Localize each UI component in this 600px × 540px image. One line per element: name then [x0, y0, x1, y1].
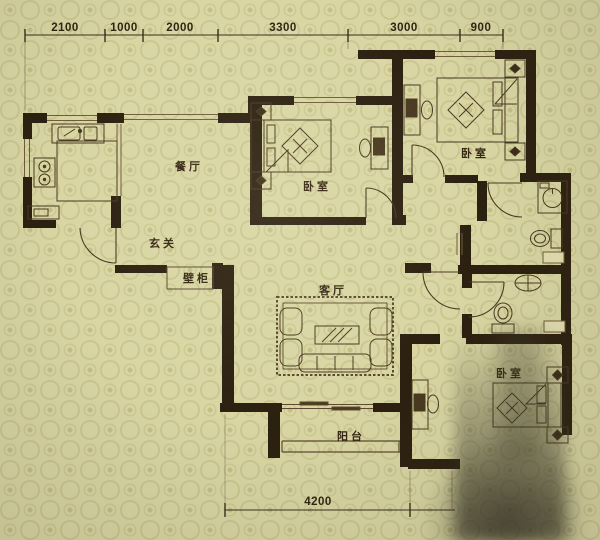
pillow [493, 110, 502, 134]
kitchen-counter [57, 141, 117, 201]
pillow [267, 125, 275, 143]
kitchen-fixtures [28, 124, 117, 219]
kitchen-door-swing [80, 228, 116, 263]
washbasin [515, 275, 541, 291]
bedroom-top-right-door-swing [412, 145, 444, 177]
dim-top-3000: 3000 [390, 22, 418, 34]
living-room-set [277, 297, 393, 375]
dim-top-2100: 2100 [51, 22, 79, 34]
dim-bottom-4200: 4200 [304, 496, 332, 508]
hallway-door-swing [423, 272, 460, 309]
dim-top-1000: 1000 [110, 22, 138, 34]
pillow [493, 82, 502, 106]
toilet [492, 303, 514, 333]
floor-plan-canvas: 2100 1000 2000 3300 3000 900 4200 [0, 0, 600, 540]
dim-top-2000: 2000 [166, 22, 194, 34]
sliding-door [282, 402, 373, 410]
bedroom-middle-furniture [251, 103, 388, 189]
base-cabinet [28, 206, 59, 219]
photo-shadow-artifact [420, 430, 580, 540]
desk-chair [422, 101, 433, 119]
sheet-fold [266, 150, 288, 172]
armchair [370, 308, 392, 335]
bedroom-top-right-furniture [404, 60, 525, 160]
pillow [267, 148, 275, 166]
bedroom-middle-door-swing [366, 188, 396, 218]
bathroom1-door-swing [488, 183, 522, 217]
label-balcony: 阳台 [337, 429, 365, 443]
label-wall-closet: 壁柜 [183, 271, 211, 285]
label-dining-room: 餐厅 [174, 159, 203, 173]
label-foyer: 玄关 [149, 236, 177, 250]
headboard [505, 78, 518, 142]
door-swings [80, 145, 522, 317]
bathroom2-door-swing [469, 282, 504, 317]
desk-chair [360, 139, 371, 157]
dim-top-900: 900 [471, 22, 492, 34]
dim-top-3300: 3300 [269, 22, 297, 34]
desk-chair [428, 395, 439, 413]
label-living-room: 客厅 [318, 283, 347, 297]
label-bedroom-middle: 卧室 [303, 179, 331, 193]
armchair [370, 339, 392, 366]
label-bedroom-top-right: 卧室 [461, 146, 489, 160]
toilet [531, 229, 563, 248]
sheet-fold [495, 79, 517, 104]
